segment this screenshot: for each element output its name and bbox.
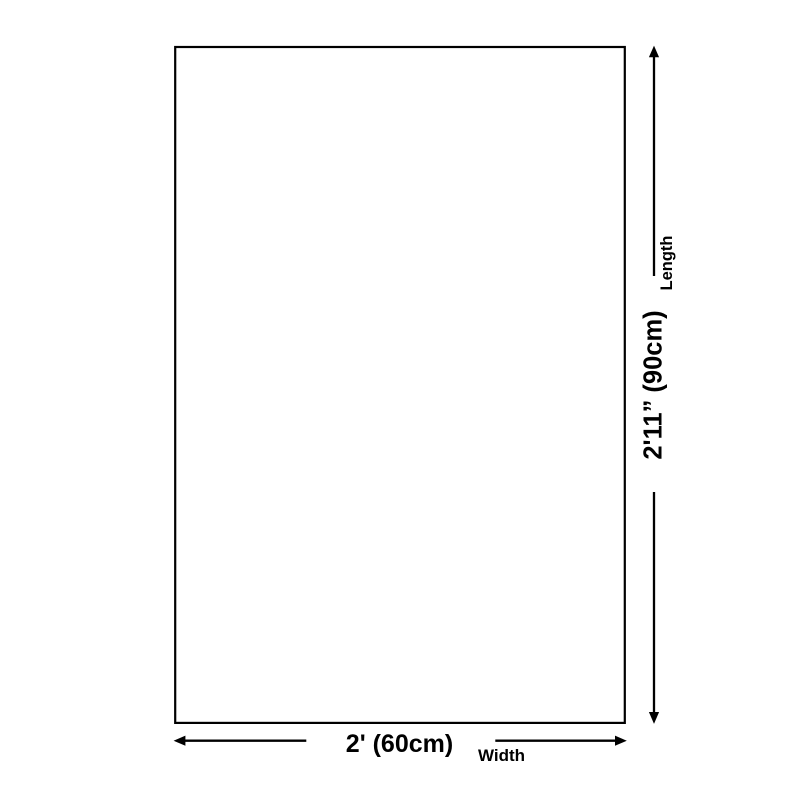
svg-text:Width: Width xyxy=(478,746,525,765)
svg-text:Length: Length xyxy=(658,236,676,291)
svg-text:2'11” (90cm): 2'11” (90cm) xyxy=(640,310,668,459)
svg-text:2' (60cm): 2' (60cm) xyxy=(346,730,453,758)
